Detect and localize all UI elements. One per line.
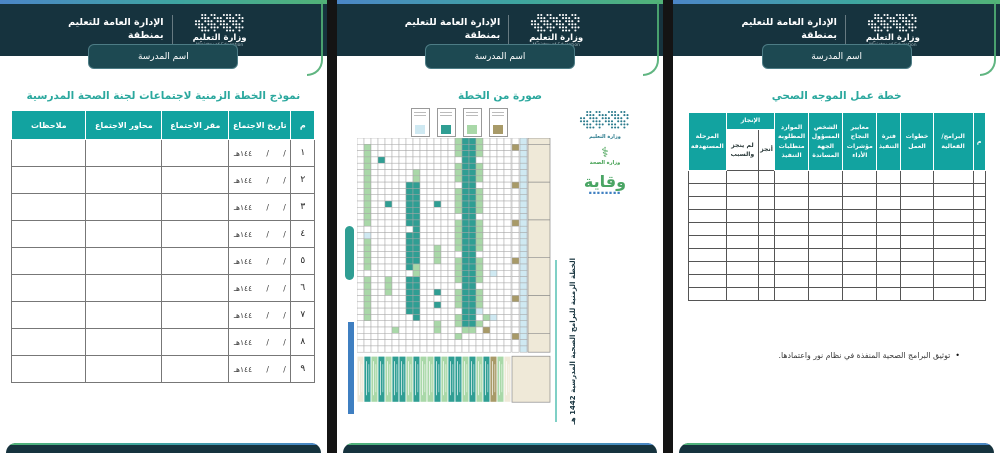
- plan-empty-cell: [901, 249, 933, 262]
- plan-empty-cell: [758, 223, 774, 236]
- ministry-logo-dots-icon: [867, 13, 919, 33]
- plan-empty-cell: [901, 223, 933, 236]
- meeting-date-cell: / / ١٤٤هـ: [229, 248, 291, 275]
- plan-empty-cell: [726, 262, 758, 275]
- notes-cell: [12, 194, 86, 221]
- moe-logo-dots-icon: [579, 110, 631, 130]
- meeting-row: ٩/ / ١٤٤هـ: [12, 356, 315, 383]
- legend-color-swatch: [415, 125, 425, 134]
- plan-empty-cell: [688, 223, 726, 236]
- org-line2: بمنطقة: [741, 30, 836, 43]
- plan-empty-cell: [973, 197, 985, 210]
- ministry-lockup: وزارة التعليم Ministry of Education الإد…: [68, 13, 258, 48]
- org-name: الإدارة العامة للتعليم بمنطقة: [741, 17, 836, 43]
- plan-empty-cell: [809, 262, 843, 275]
- plan-empty-cell: [901, 184, 933, 197]
- plan-empty-cell: [973, 184, 985, 197]
- ministry-logo-dots-icon: [194, 13, 246, 33]
- plan-empty-cell: [726, 223, 758, 236]
- plan-empty-cell: [758, 197, 774, 210]
- plan-empty-cell: [843, 210, 877, 223]
- plan-empty-cell: [758, 249, 774, 262]
- school-name-banner: اسم المدرسة: [762, 44, 912, 69]
- plan-empty-cell: [809, 171, 843, 184]
- meeting-topics-cell: [86, 194, 162, 221]
- row-number-cell: ٦: [291, 275, 315, 302]
- meeting-date-cell: / / ١٤٤هـ: [229, 356, 291, 383]
- meetings-table-body: ١/ / ١٤٤هـ٢/ / ١٤٤هـ٣/ / ١٤٤هـ٤/ / ١٤٤هـ…: [12, 140, 315, 383]
- health-guide-table: م البرامج/ الفعالية خطوات العمل فترة الت…: [688, 112, 986, 301]
- meeting-row: ٨/ / ١٤٤هـ: [12, 329, 315, 356]
- meeting-venue-cell: [162, 221, 229, 248]
- col-header-required-resources: الموارد المطلوبة متطلبات التنفيذ: [775, 113, 809, 171]
- notes-cell: [12, 356, 86, 383]
- legend-color-swatch: [467, 125, 477, 134]
- meeting-venue-cell: [162, 275, 229, 302]
- plan-empty-cell: [933, 223, 973, 236]
- plan-gantt-grid: [357, 138, 551, 408]
- plan-empty-cell: [758, 262, 774, 275]
- plan-empty-cell: [775, 249, 809, 262]
- plan-empty-row: [688, 249, 985, 262]
- lockup-divider: [508, 15, 509, 45]
- col-header-not-achieved: لم ينجز والسبب: [726, 130, 758, 171]
- plan-empty-cell: [877, 262, 901, 275]
- col-header-index: م: [973, 113, 985, 171]
- row-number-cell: ٨: [291, 329, 315, 356]
- plan-empty-cell: [758, 288, 774, 301]
- row-number-cell: ١: [291, 140, 315, 167]
- row-number-cell: ٣: [291, 194, 315, 221]
- plan-empty-cell: [843, 262, 877, 275]
- plan-empty-cell: [933, 236, 973, 249]
- plan-empty-cell: [809, 236, 843, 249]
- plan-empty-cell: [933, 275, 973, 288]
- plan-empty-cell: [877, 171, 901, 184]
- row-number-cell: ٧: [291, 302, 315, 329]
- plan-empty-cell: [877, 249, 901, 262]
- plan-empty-cell: [843, 236, 877, 249]
- meeting-venue-cell: [162, 329, 229, 356]
- plan-empty-cell: [973, 288, 985, 301]
- ministry-name-ar: وزارة التعليم: [193, 33, 247, 43]
- plan-empty-cell: [809, 223, 843, 236]
- header-accent-curve: [980, 2, 996, 76]
- plan-empty-cell: [688, 249, 726, 262]
- col-header-achievement: الإنجاز: [726, 113, 774, 130]
- meeting-topics-cell: [86, 329, 162, 356]
- ministry-of-education-logo: وزارة التعليم Ministry of Education: [517, 13, 595, 48]
- plan-empty-cell: [758, 184, 774, 197]
- col-header-programs: البرامج/ الفعالية: [933, 113, 973, 171]
- plan-left-blue-bar: [348, 322, 354, 414]
- caption-text: الخطة الزمنية للبرامج الصحية المدرسية 14…: [569, 258, 577, 422]
- plan-empty-cell: [775, 197, 809, 210]
- plan-empty-row: [688, 197, 985, 210]
- row-number-cell: ٢: [291, 167, 315, 194]
- ministry-of-education-logo: وزارة التعليم Ministry of Education: [854, 13, 932, 48]
- plan-empty-cell: [758, 210, 774, 223]
- ministry-logo-dots-icon: [530, 13, 582, 33]
- notes-cell: [12, 275, 86, 302]
- ministry-name-ar: وزارة التعليم: [529, 33, 583, 43]
- moe-logo-text: وزارة التعليم: [559, 134, 651, 140]
- plan-empty-cell: [688, 171, 726, 184]
- notes-cell: [12, 140, 86, 167]
- meeting-date-cell: / / ١٤٤هـ: [229, 140, 291, 167]
- plan-empty-cell: [688, 262, 726, 275]
- meeting-topics-cell: [86, 167, 162, 194]
- plan-empty-cell: [877, 236, 901, 249]
- plan-empty-cell: [901, 288, 933, 301]
- plan-empty-cell: [775, 223, 809, 236]
- plan-empty-cell: [973, 236, 985, 249]
- plan-empty-cell: [809, 210, 843, 223]
- meeting-topics-cell: [86, 356, 162, 383]
- page-title: نموذج الخطة الزمنية لاجتماعات لجنة الصحة…: [0, 90, 327, 102]
- plan-empty-cell: [688, 210, 726, 223]
- plan-empty-cell: [775, 275, 809, 288]
- col-header-target-stage: المرحلة المستهدفة: [688, 113, 726, 171]
- col-header-work-steps: خطوات العمل: [901, 113, 933, 171]
- meeting-date-cell: / / ١٤٤هـ: [229, 221, 291, 248]
- plan-empty-cell: [877, 184, 901, 197]
- meeting-topics-cell: [86, 221, 162, 248]
- plan-empty-cell: [775, 184, 809, 197]
- meetings-table: م تاريخ الاجتماع مقر الاجتماع محاور الاج…: [11, 110, 315, 383]
- weqaya-logo-subline: ▪▪▪▪▪▪▪▪: [559, 191, 651, 196]
- pages-board: وزارة التعليم Ministry of Education الإد…: [0, 0, 1000, 453]
- legend-item: [489, 108, 508, 137]
- plan-empty-cell: [688, 275, 726, 288]
- plan-empty-cell: [973, 275, 985, 288]
- ministry-name-ar: وزارة التعليم: [866, 33, 920, 43]
- header-accent-curve: [307, 2, 323, 76]
- meeting-date-cell: / / ١٤٤هـ: [229, 275, 291, 302]
- page-title: صورة من الخطة: [337, 90, 664, 102]
- notes-cell: [12, 302, 86, 329]
- col-header-meeting-topics: محاور الاجتماع: [86, 111, 162, 140]
- meeting-row: ١/ / ١٤٤هـ: [12, 140, 315, 167]
- meeting-topics-cell: [86, 302, 162, 329]
- plan-empty-cell: [843, 197, 877, 210]
- page-footer-bar: [343, 443, 658, 453]
- plan-empty-cell: [901, 262, 933, 275]
- org-name: الإدارة العامة للتعليم بمنطقة: [68, 17, 163, 43]
- legend-item: [411, 108, 430, 137]
- page-footer-bar: [6, 443, 321, 453]
- plan-empty-cell: [809, 288, 843, 301]
- lockup-divider: [172, 15, 173, 45]
- plan-empty-cell: [933, 197, 973, 210]
- plan-empty-cell: [688, 184, 726, 197]
- plan-empty-cell: [809, 275, 843, 288]
- meeting-topics-cell: [86, 140, 162, 167]
- meeting-venue-cell: [162, 167, 229, 194]
- plan-empty-cell: [933, 288, 973, 301]
- meeting-venue-cell: [162, 356, 229, 383]
- moh-logo-text: وزارة الصحة: [559, 160, 651, 166]
- plan-empty-cell: [726, 171, 758, 184]
- legend-item: [437, 108, 456, 137]
- plan-empty-cell: [933, 262, 973, 275]
- legend-color-swatch: [441, 125, 451, 134]
- plan-empty-cell: [877, 223, 901, 236]
- documentation-note: •توثيق البرامج الصحية المنفذة في نظام نو…: [673, 351, 1000, 360]
- ministry-lockup: وزارة التعليم Ministry of Education الإد…: [405, 13, 595, 48]
- plan-empty-cell: [901, 197, 933, 210]
- plan-empty-cell: [933, 210, 973, 223]
- page-health-guide-plan: وزارة التعليم Ministry of Education الإد…: [673, 0, 1000, 453]
- meeting-date-cell: / / ١٤٤هـ: [229, 167, 291, 194]
- plan-empty-cell: [843, 171, 877, 184]
- row-number-cell: ٤: [291, 221, 315, 248]
- ministry-lockup: وزارة التعليم Ministry of Education الإد…: [741, 13, 931, 48]
- plan-empty-cell: [775, 288, 809, 301]
- plan-empty-row: [688, 236, 985, 249]
- plan-empty-cell: [877, 275, 901, 288]
- lockup-divider: [845, 15, 846, 45]
- org-line2: بمنطقة: [405, 30, 500, 43]
- meeting-date-cell: / / ١٤٤هـ: [229, 302, 291, 329]
- plan-empty-cell: [726, 249, 758, 262]
- org-name: الإدارة العامة للتعليم بمنطقة: [405, 17, 500, 43]
- meeting-topics-cell: [86, 275, 162, 302]
- meeting-venue-cell: [162, 248, 229, 275]
- plan-empty-row: [688, 275, 985, 288]
- plan-empty-cell: [843, 275, 877, 288]
- plan-empty-cell: [726, 197, 758, 210]
- plan-empty-cell: [843, 184, 877, 197]
- plan-empty-cell: [933, 171, 973, 184]
- meeting-row: ٦/ / ١٤٤هـ: [12, 275, 315, 302]
- org-line1: الإدارة العامة للتعليم: [405, 17, 500, 30]
- org-line2: بمنطقة: [68, 30, 163, 43]
- col-header-meeting-date: تاريخ الاجتماع: [229, 111, 291, 140]
- plan-empty-cell: [726, 275, 758, 288]
- meeting-topics-cell: [86, 248, 162, 275]
- meeting-venue-cell: [162, 140, 229, 167]
- ministry-of-education-logo: وزارة التعليم Ministry of Education: [181, 13, 259, 48]
- plan-empty-cell: [877, 197, 901, 210]
- plan-empty-row: [688, 262, 985, 275]
- meeting-row: ٧/ / ١٤٤هـ: [12, 302, 315, 329]
- plan-empty-cell: [901, 171, 933, 184]
- plan-empty-row: [688, 184, 985, 197]
- plan-empty-cell: [877, 288, 901, 301]
- plan-empty-cell: [933, 184, 973, 197]
- plan-empty-cell: [809, 184, 843, 197]
- plan-empty-row: [688, 210, 985, 223]
- plan-logos: وزارة التعليم ⚕ وزارة الصحة وقاية ▪▪▪▪▪▪…: [559, 110, 651, 196]
- plan-empty-cell: [973, 171, 985, 184]
- meeting-date-cell: / / ١٤٤هـ: [229, 329, 291, 356]
- plan-empty-cell: [726, 210, 758, 223]
- notes-cell: [12, 329, 86, 356]
- plan-empty-cell: [726, 184, 758, 197]
- meeting-venue-cell: [162, 194, 229, 221]
- plan-empty-cell: [758, 171, 774, 184]
- plan-empty-cell: [901, 275, 933, 288]
- page-meetings-plan: وزارة التعليم Ministry of Education الإد…: [0, 0, 327, 453]
- plan-empty-cell: [843, 288, 877, 301]
- plan-empty-cell: [726, 236, 758, 249]
- row-number-cell: ٥: [291, 248, 315, 275]
- col-header-success-criteria: معايير النجاح مؤشرات الأداء: [843, 113, 877, 171]
- col-header-notes: ملاحظات: [12, 111, 86, 140]
- row-number-cell: ٩: [291, 356, 315, 383]
- plan-empty-cell: [775, 210, 809, 223]
- page-footer-bar: [679, 443, 994, 453]
- page-plan-photo: وزارة التعليم Ministry of Education الإد…: [337, 0, 664, 453]
- org-line1: الإدارة العامة للتعليم: [68, 17, 163, 30]
- plan-empty-row: [688, 223, 985, 236]
- plan-empty-cell: [901, 236, 933, 249]
- plan-empty-cell: [688, 288, 726, 301]
- meetings-table-header-row: م تاريخ الاجتماع مقر الاجتماع محاور الاج…: [12, 111, 315, 140]
- health-guide-header-row-1: م البرامج/ الفعالية خطوات العمل فترة الت…: [688, 113, 985, 130]
- col-header-index: م: [291, 111, 315, 140]
- ministry-of-health-logo: ⚕ وزارة الصحة: [559, 146, 651, 166]
- legend-item: [463, 108, 482, 137]
- plan-empty-cell: [726, 288, 758, 301]
- page-title: خطة عمل الموجه الصحي: [673, 90, 1000, 102]
- col-header-execution-period: فترة التنفيذ: [877, 113, 901, 171]
- plan-empty-cell: [775, 171, 809, 184]
- plan-empty-cell: [758, 275, 774, 288]
- plan-empty-cell: [973, 223, 985, 236]
- caption-accent-line: [555, 260, 557, 422]
- notes-cell: [12, 167, 86, 194]
- plan-empty-cell: [843, 249, 877, 262]
- notes-cell: [12, 221, 86, 248]
- plan-empty-cell: [688, 197, 726, 210]
- org-line1: الإدارة العامة للتعليم: [741, 17, 836, 30]
- header-accent-curve: [643, 2, 659, 76]
- plan-empty-cell: [843, 223, 877, 236]
- plan-empty-cell: [775, 236, 809, 249]
- caduceus-icon: ⚕: [559, 146, 651, 160]
- plan-left-ribbon: [345, 226, 354, 280]
- meeting-row: ٣/ / ١٤٤هـ: [12, 194, 315, 221]
- col-header-achieved: أنجز: [758, 130, 774, 171]
- weqaya-logo-text: وقاية: [584, 172, 626, 191]
- meeting-venue-cell: [162, 302, 229, 329]
- plan-empty-cell: [688, 236, 726, 249]
- plan-empty-cell: [775, 262, 809, 275]
- meeting-date-cell: / / ١٤٤هـ: [229, 194, 291, 221]
- plan-empty-row: [688, 171, 985, 184]
- plan-empty-cell: [973, 249, 985, 262]
- col-header-meeting-venue: مقر الاجتماع: [162, 111, 229, 140]
- plan-photo-figure: وزارة التعليم ⚕ وزارة الصحة وقاية ▪▪▪▪▪▪…: [349, 108, 651, 426]
- plan-empty-cell: [933, 249, 973, 262]
- note-text: توثيق البرامج الصحية المنفذة في نظام نور…: [779, 351, 951, 360]
- meeting-row: ٤/ / ١٤٤هـ: [12, 221, 315, 248]
- school-name-banner: اسم المدرسة: [88, 44, 238, 69]
- plan-legend: [411, 108, 508, 137]
- plan-empty-cell: [973, 262, 985, 275]
- notes-cell: [12, 248, 86, 275]
- school-name-banner: اسم المدرسة: [425, 44, 575, 69]
- plan-empty-cell: [877, 210, 901, 223]
- meeting-row: ٥/ / ١٤٤هـ: [12, 248, 315, 275]
- plan-empty-cell: [809, 197, 843, 210]
- plan-empty-cell: [901, 210, 933, 223]
- health-guide-table-body: [688, 171, 985, 301]
- plan-empty-cell: [973, 210, 985, 223]
- plan-side-caption: الخطة الزمنية للبرامج الصحية المدرسية 14…: [555, 258, 571, 424]
- plan-empty-row: [688, 288, 985, 301]
- legend-color-swatch: [493, 125, 503, 134]
- plan-empty-cell: [809, 249, 843, 262]
- col-header-responsible-person: الشخص المسؤول الجهة المساندة: [809, 113, 843, 171]
- meeting-row: ٢/ / ١٤٤هـ: [12, 167, 315, 194]
- bullet-icon: •: [955, 351, 960, 360]
- plan-empty-cell: [758, 236, 774, 249]
- weqaya-logo: وقاية ▪▪▪▪▪▪▪▪: [559, 172, 651, 196]
